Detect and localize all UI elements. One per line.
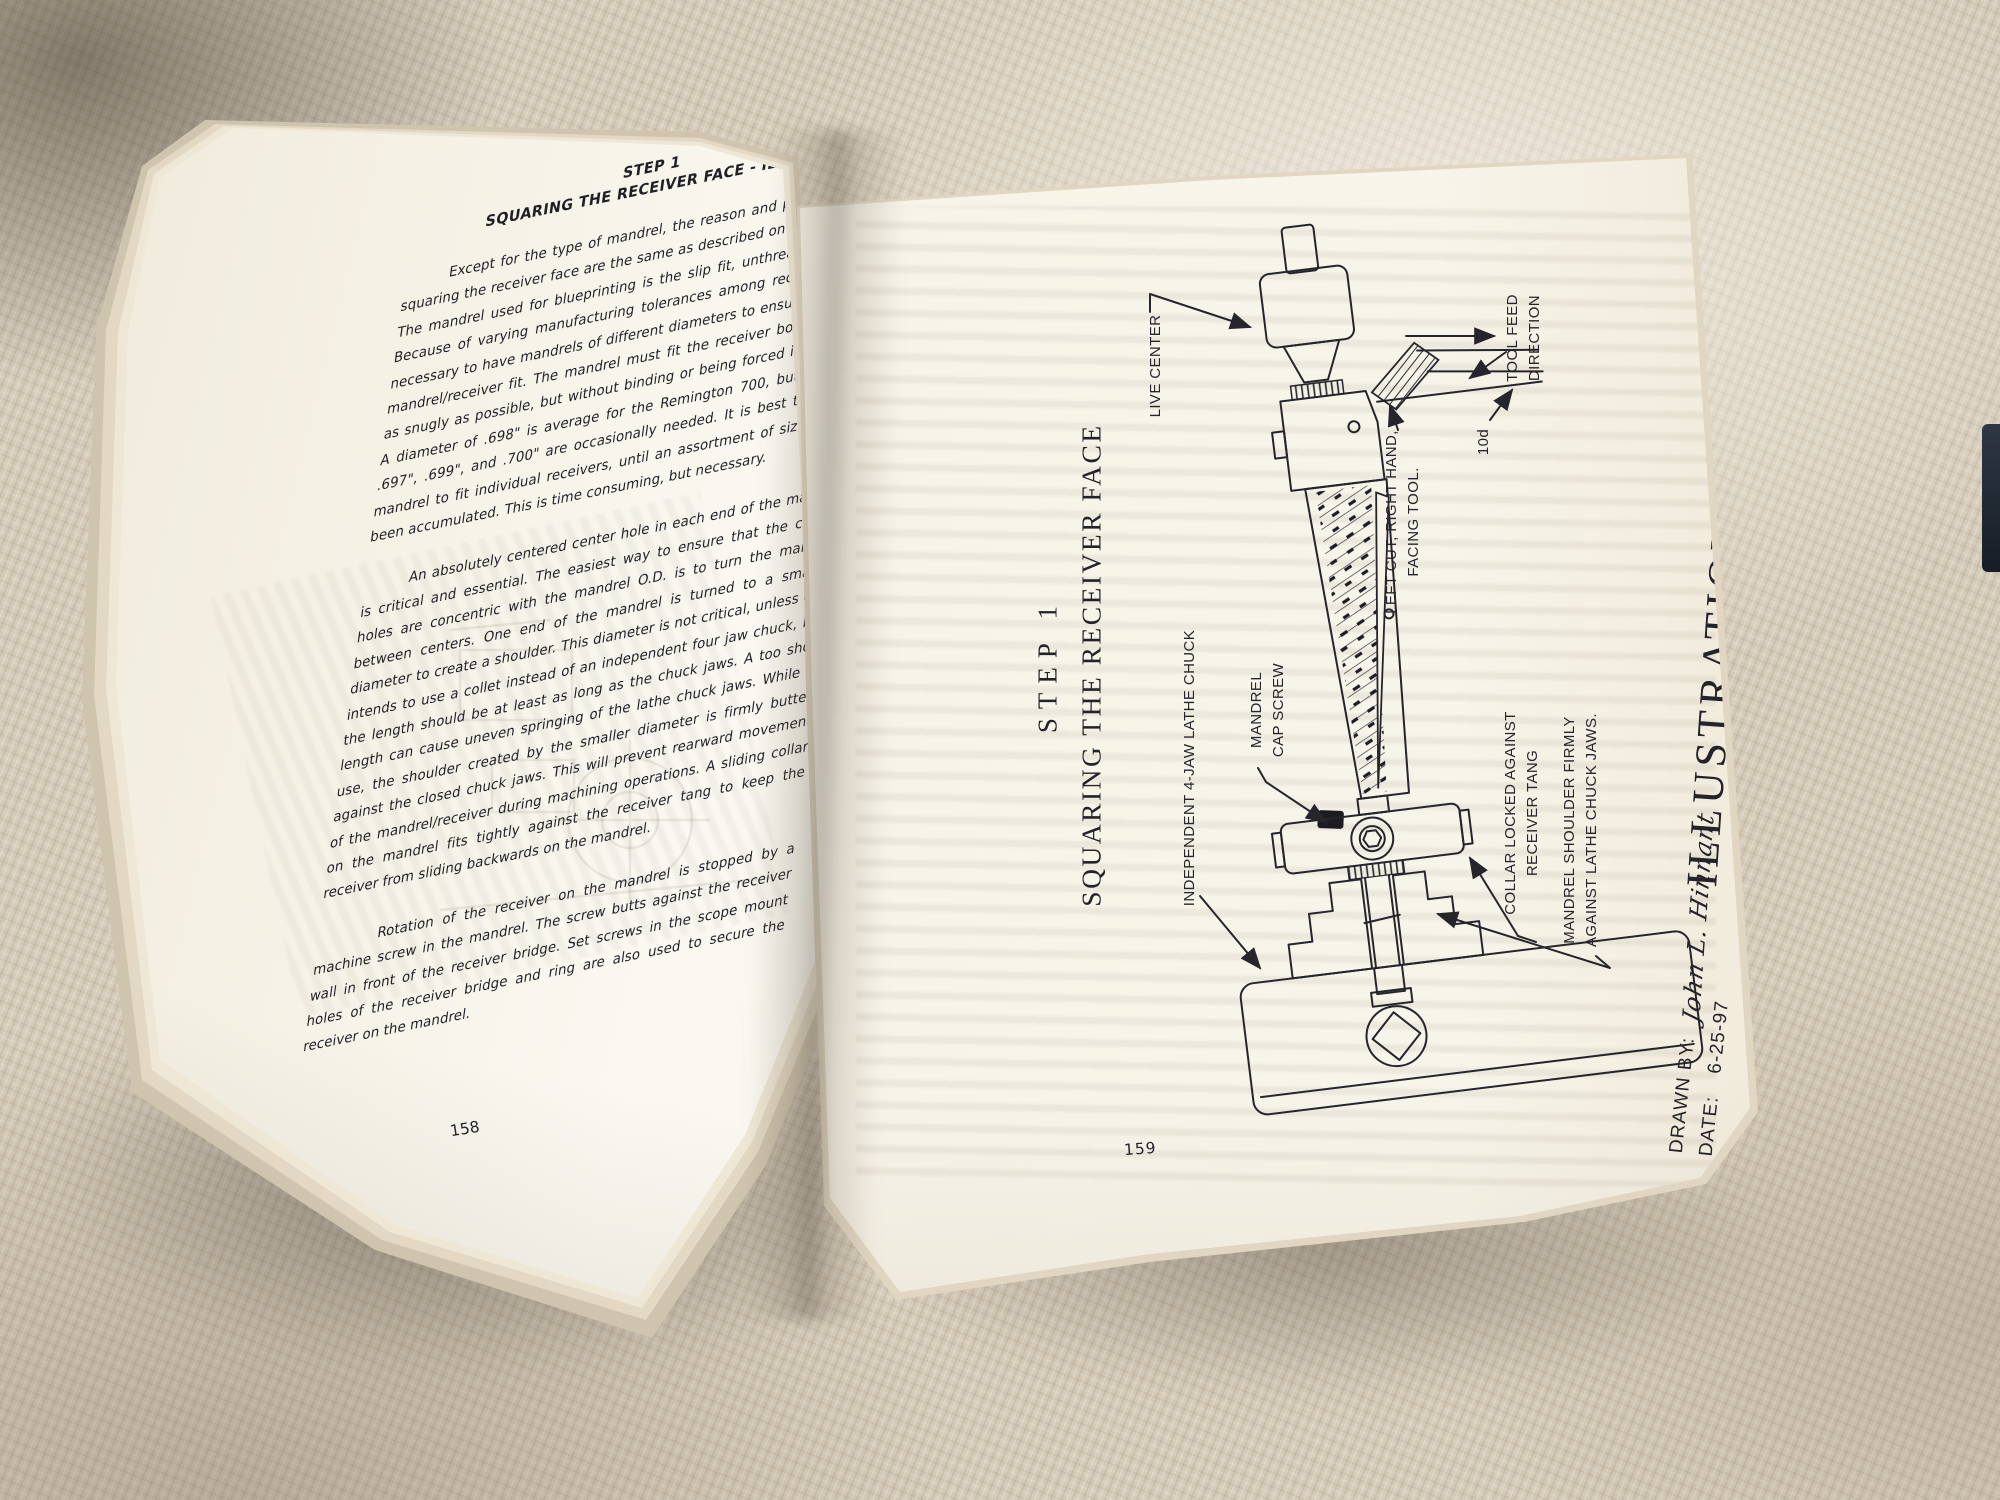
date-label: DATE: — [1696, 1095, 1723, 1157]
callout-tool-angle: 10d — [1475, 390, 1512, 455]
tool-feed-label-line1: TOOL FEED — [1504, 294, 1521, 382]
collar-label-line2: RECEIVER TANG — [1524, 750, 1541, 876]
edge-object — [1982, 424, 2000, 572]
heading-title: SQUARING THE RECEIVER FACE — [1076, 423, 1108, 906]
tool-feed-label-line2: DIRECTION — [1526, 295, 1543, 381]
open-book-photo: STEP 1 SQUARING THE RECEIVER FACE - ILL … — [0, 0, 2000, 1500]
facing-tool-label-line1: LEFT CUT, RIGHT HAND, — [1383, 430, 1400, 614]
receiver-on-mandrel-drawing — [1265, 390, 1428, 832]
chuck-body-drawing — [1239, 930, 1704, 1116]
callout-live-center: LIVE CENTER — [1147, 294, 1250, 417]
shoulder-label-line1: MANDREL SHOULDER FIRMLY — [1561, 716, 1578, 944]
lathe-setup-technical-drawing: LIVE CENTER TOOL FEED DIRECTION 10d LEFT… — [1000, 170, 1760, 1180]
callout-facing-tool: LEFT CUT, RIGHT HAND, FACING TOOL. — [1383, 406, 1422, 614]
callout-cap-screw: MANDREL CAP SCREW — [1248, 662, 1326, 822]
right-page-heading: STEP 1 SQUARING THE RECEIVER FACE — [1033, 423, 1108, 906]
collar-label-line1: COLLAR LOCKED AGAINST — [1502, 711, 1519, 914]
live-center-label: LIVE CENTER — [1147, 315, 1164, 418]
page-number-right: 159 — [1123, 1139, 1157, 1159]
date-value: 6-25-97 — [1704, 999, 1733, 1075]
callout-collar: COLLAR LOCKED AGAINST RECEIVER TANG — [1470, 711, 1541, 942]
live-center-drawing — [1253, 221, 1361, 402]
tool-angle-label: 10d — [1475, 429, 1492, 455]
cap-screw-label-line2: CAP SCREW — [1270, 662, 1287, 757]
cap-screw-label-line1: MANDREL — [1248, 672, 1265, 748]
page-number-left: 158 — [449, 1118, 481, 1140]
shoulder-label-line2: AGAINST LATHE CHUCK JAWS. — [1583, 713, 1600, 947]
lathe-chuck-label: INDEPENDENT 4-JAW LATHE CHUCK — [1181, 630, 1198, 906]
heading-step: STEP 1 — [1033, 423, 1064, 906]
facing-tool-label-line2: FACING TOOL. — [1405, 467, 1422, 576]
